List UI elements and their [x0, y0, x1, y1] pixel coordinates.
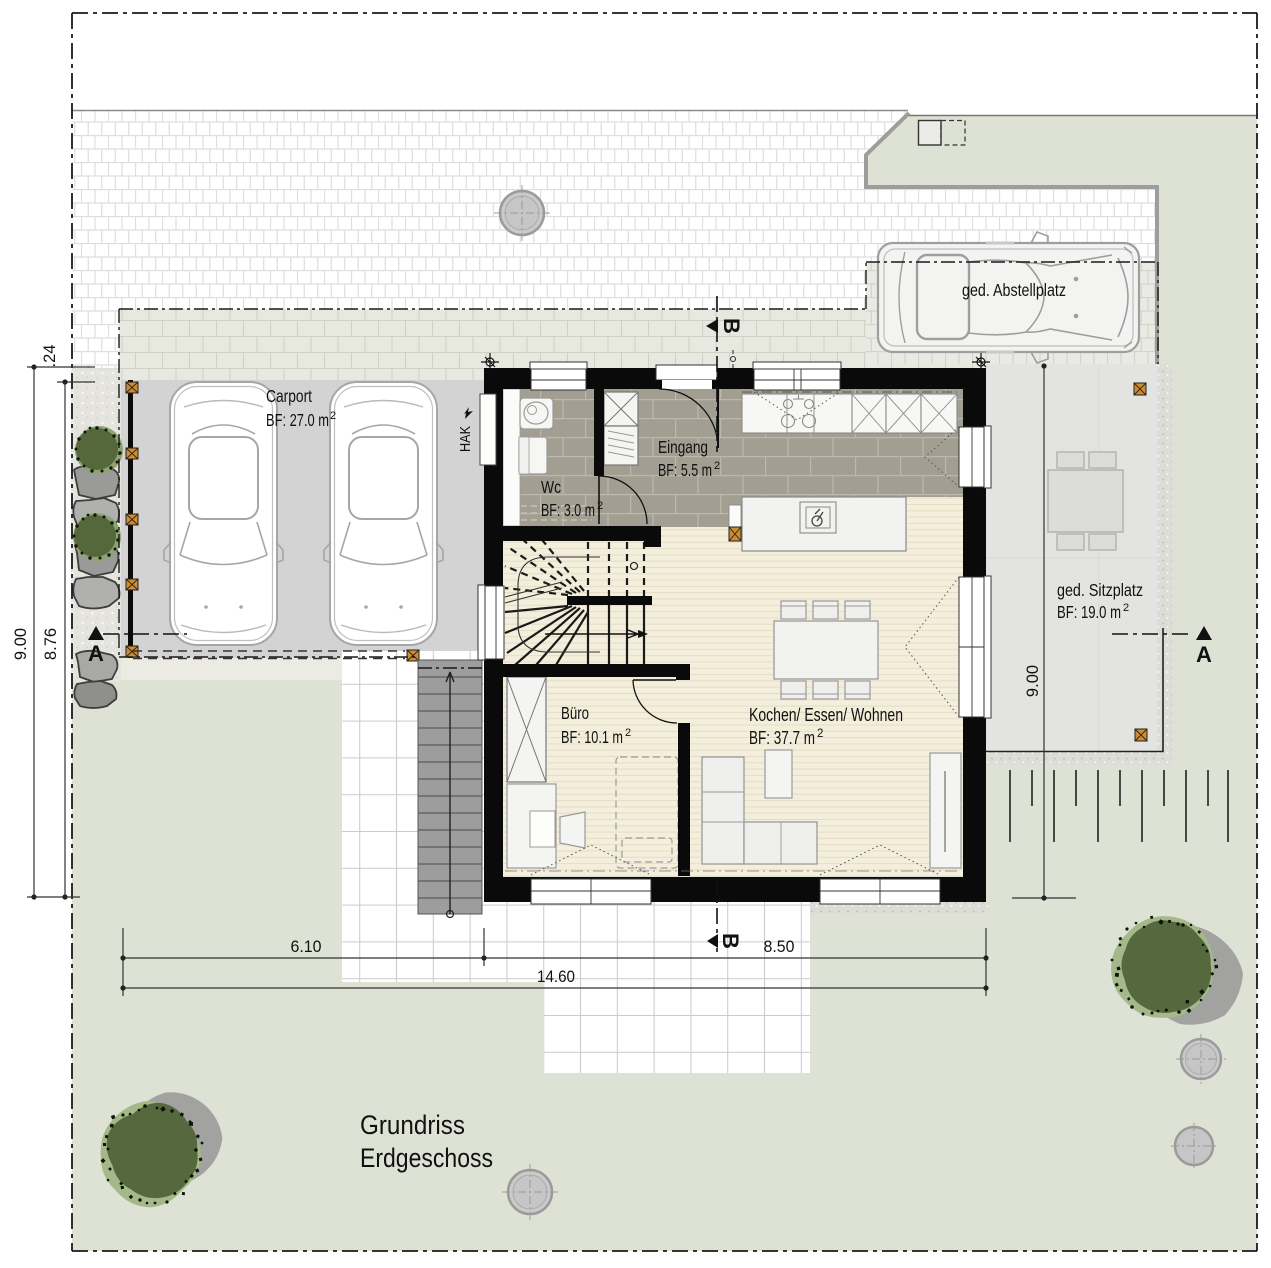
svg-text:2: 2: [714, 460, 720, 472]
svg-text:Eingang: Eingang: [658, 437, 708, 457]
svg-text:2: 2: [330, 410, 336, 422]
svg-text:BF: 5.5 m: BF: 5.5 m: [658, 460, 712, 480]
svg-text:2: 2: [1123, 602, 1129, 614]
svg-text:9.00: 9.00: [1024, 665, 1042, 697]
svg-text:Wc: Wc: [541, 477, 561, 497]
svg-text:BF: 37.7 m: BF: 37.7 m: [749, 727, 815, 748]
svg-text:Büro: Büro: [561, 703, 589, 723]
svg-text:Grundriss: Grundriss: [360, 1110, 465, 1140]
svg-text:2: 2: [625, 727, 631, 739]
svg-text:ged. Abstellplatz: ged. Abstellplatz: [962, 280, 1066, 300]
svg-text:BF: 27.0 m: BF: 27.0 m: [266, 410, 329, 430]
svg-text:8.76: 8.76: [42, 628, 60, 660]
svg-text:A: A: [1196, 642, 1212, 667]
svg-text:8.50: 8.50: [764, 938, 795, 956]
svg-text:14.60: 14.60: [537, 968, 575, 986]
svg-text:B: B: [718, 933, 743, 949]
svg-text:Erdgeschoss: Erdgeschoss: [360, 1143, 493, 1173]
svg-text:Carport: Carport: [266, 386, 312, 406]
svg-text:Kochen/ Essen/ Wohnen: Kochen/ Essen/ Wohnen: [749, 704, 903, 725]
svg-text:ged. Sitzplatz: ged. Sitzplatz: [1057, 580, 1143, 600]
svg-text:HAK: HAK: [457, 426, 474, 452]
svg-text:.24: .24: [41, 345, 59, 368]
svg-text:BF: 10.1 m: BF: 10.1 m: [561, 727, 623, 747]
svg-text:A: A: [88, 641, 104, 666]
svg-text:6.10: 6.10: [291, 938, 322, 956]
svg-text:B: B: [719, 318, 744, 334]
svg-text:2: 2: [817, 728, 823, 740]
svg-text:BF: 19.0 m: BF: 19.0 m: [1057, 602, 1121, 622]
svg-text:9.00: 9.00: [12, 628, 30, 660]
svg-text:2: 2: [597, 500, 603, 512]
svg-text:BF: 3.0 m: BF: 3.0 m: [541, 500, 595, 520]
